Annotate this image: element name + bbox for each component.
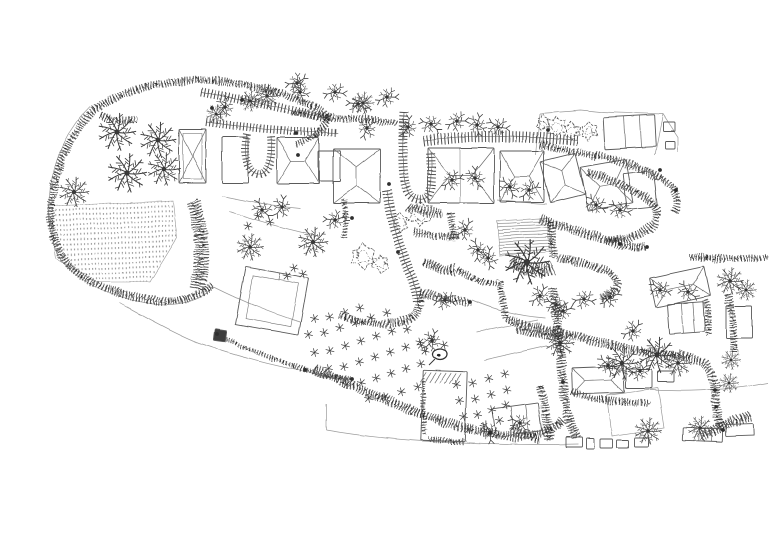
building — [318, 151, 340, 181]
building — [277, 138, 319, 184]
building — [617, 440, 628, 448]
building — [603, 115, 656, 150]
building — [179, 129, 206, 183]
drawing-canvas: Hand-drawn ink site plan of a village ga… — [0, 0, 770, 544]
building — [726, 424, 754, 437]
layer-palms — [59, 84, 757, 445]
building — [500, 151, 544, 202]
building — [235, 267, 308, 335]
layer-twig-trees — [211, 67, 702, 449]
building — [222, 137, 248, 183]
building — [586, 438, 594, 449]
layer-buildings — [179, 115, 754, 449]
layer-orchard — [244, 212, 511, 434]
layer-fields — [48, 201, 552, 282]
building — [634, 438, 648, 447]
site-plan-svg — [0, 0, 770, 544]
building — [213, 329, 226, 342]
building — [572, 366, 625, 394]
building — [667, 302, 705, 334]
building — [665, 141, 675, 149]
building — [428, 148, 494, 203]
layer-ink-dots — [210, 98, 725, 435]
building — [600, 439, 613, 448]
building — [540, 153, 585, 202]
